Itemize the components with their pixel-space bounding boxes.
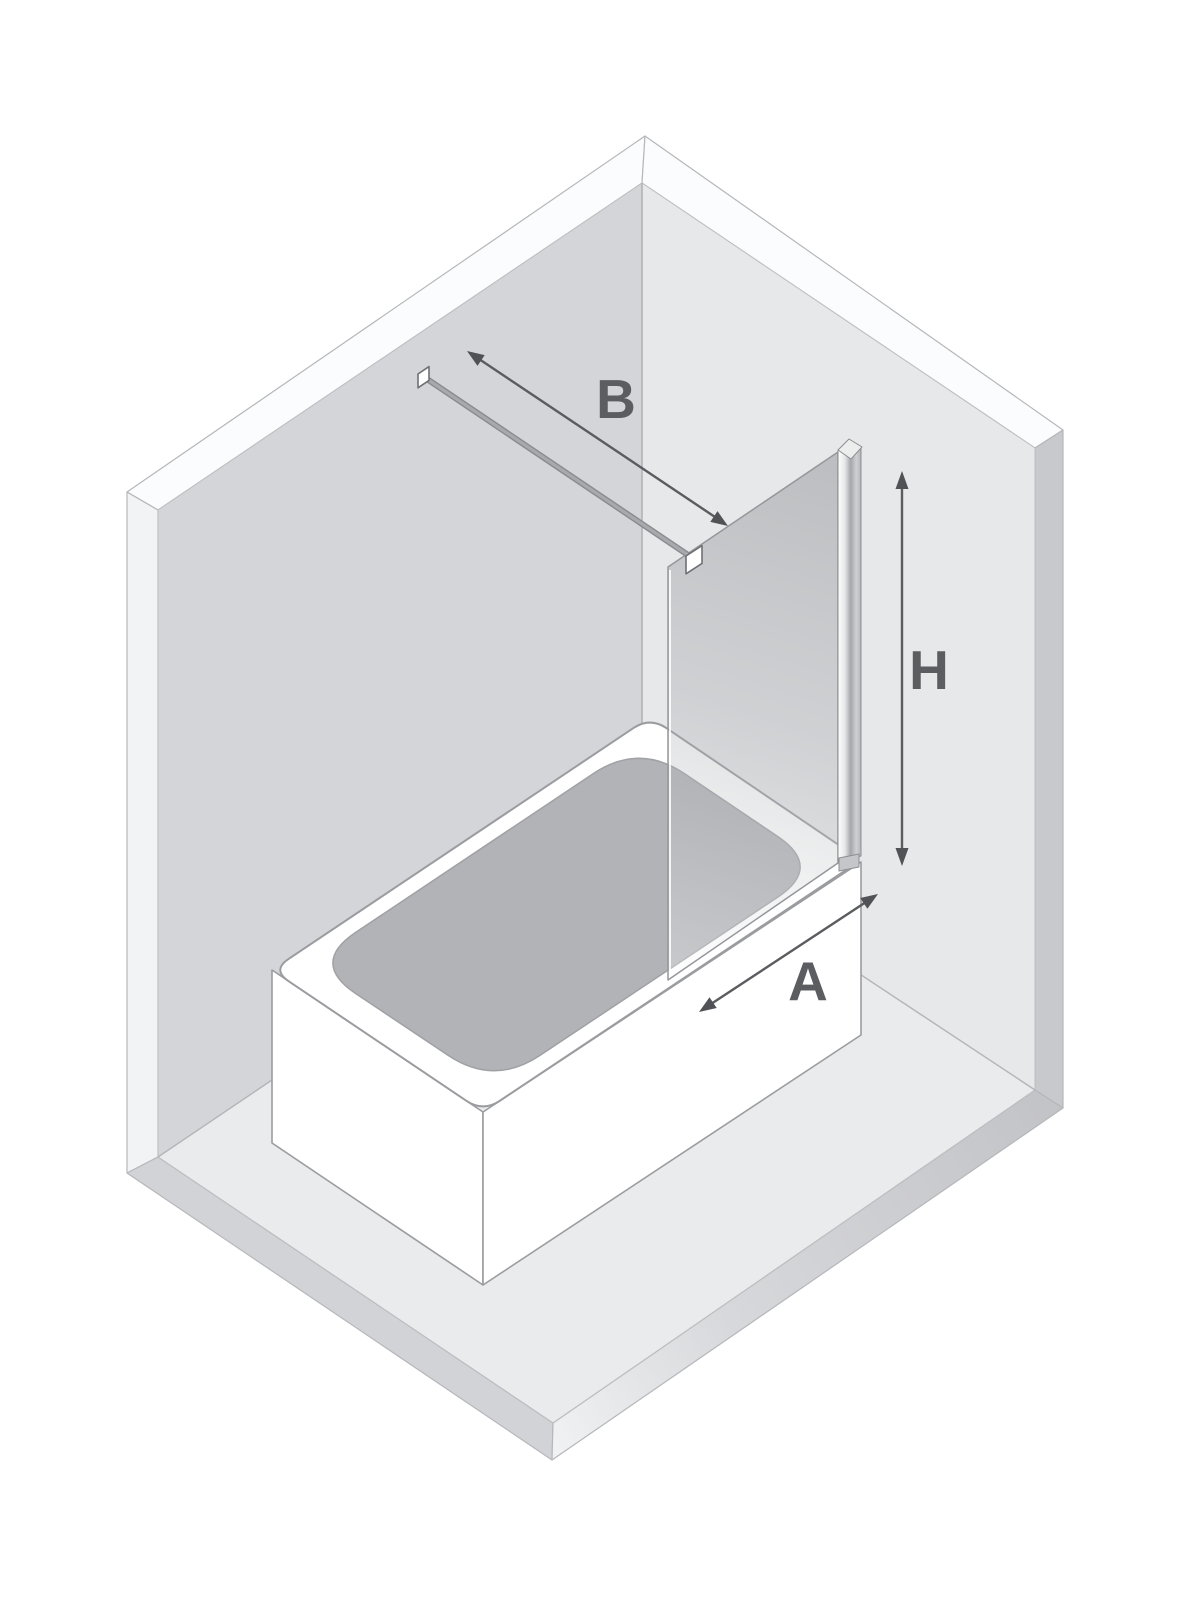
- dimension-b-label: B: [596, 368, 636, 430]
- dimension-a-label: A: [788, 950, 828, 1012]
- diagram-canvas: B H A: [0, 0, 1195, 1600]
- dimension-h-label: H: [909, 639, 949, 701]
- isometric-bath-screen-diagram: B H A: [0, 0, 1195, 1600]
- wall-side-edge-right: [1035, 430, 1063, 1108]
- wall-side-edge-left: [127, 492, 158, 1173]
- wall-profile: [838, 447, 861, 861]
